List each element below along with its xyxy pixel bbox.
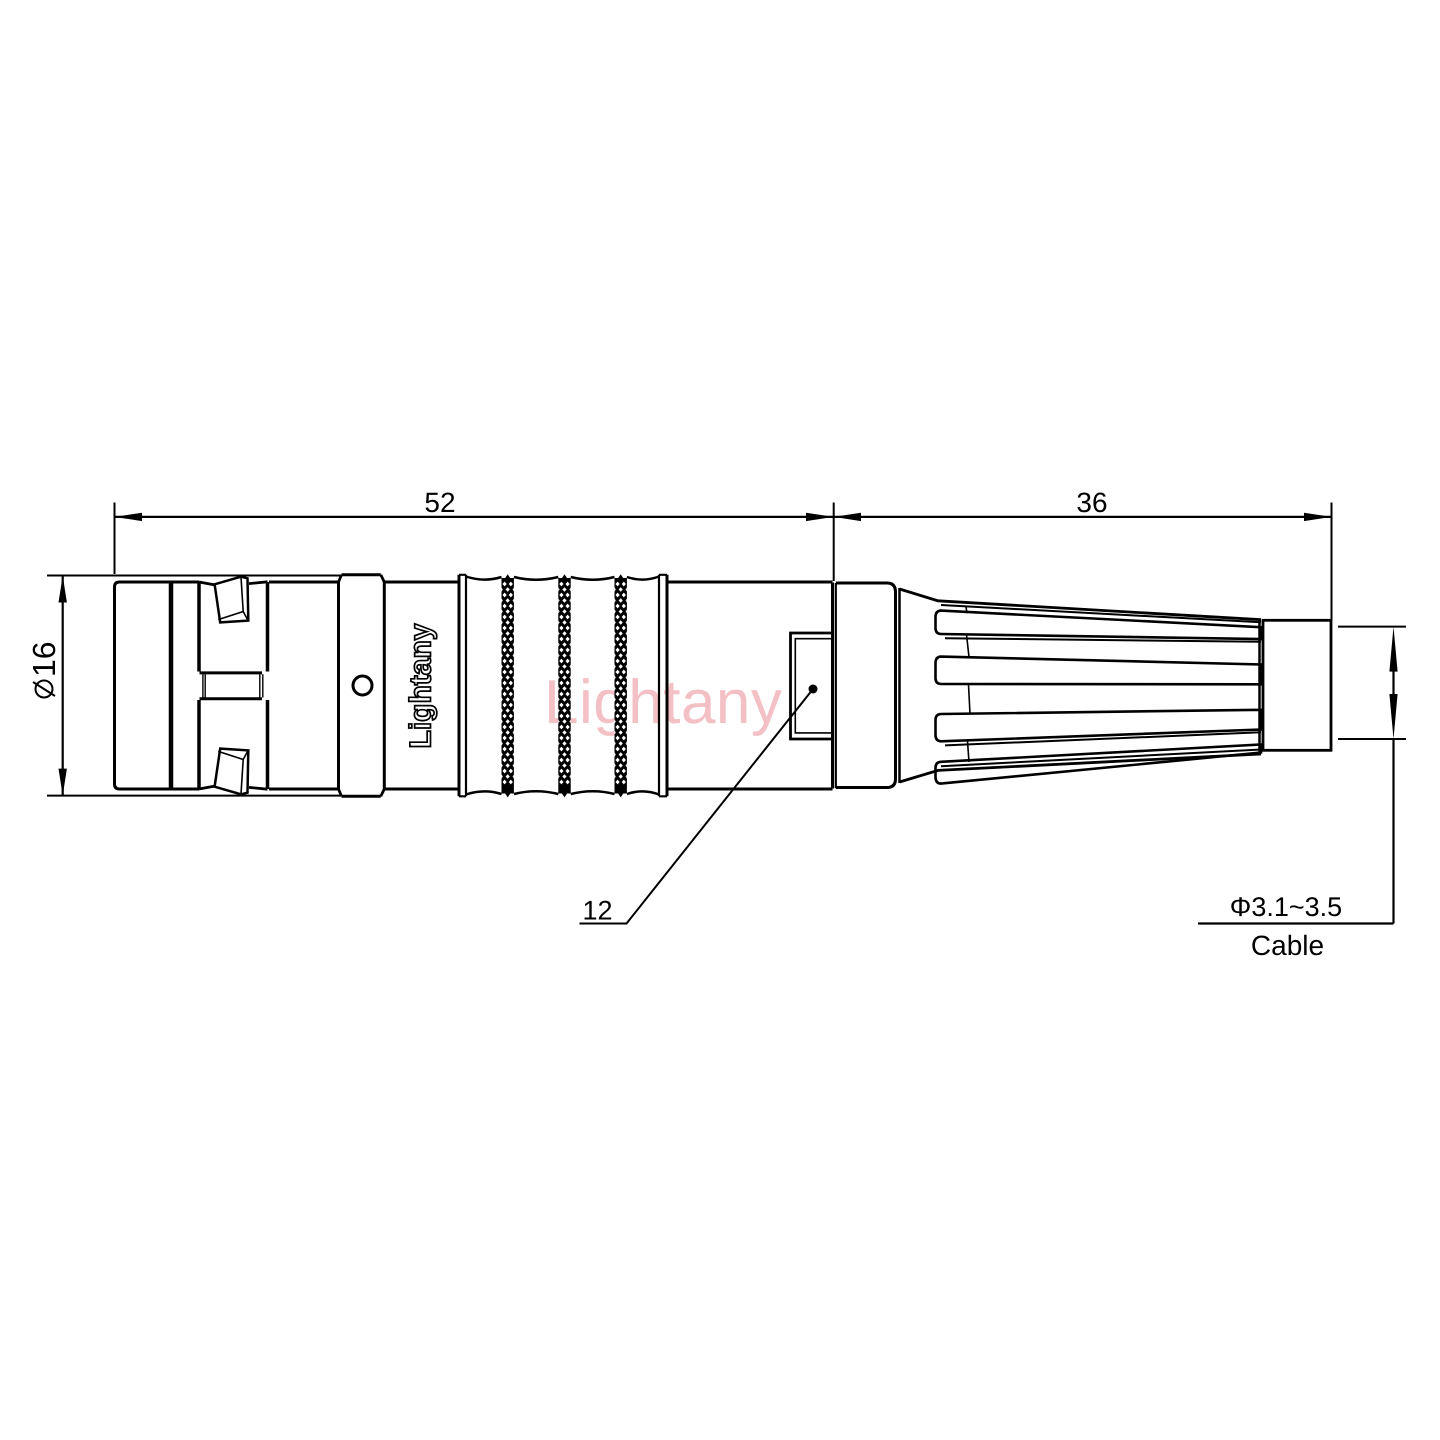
svg-text:Lightany: Lightany xyxy=(544,668,782,737)
svg-text:36: 36 xyxy=(1076,487,1107,518)
svg-text:Lightany: Lightany xyxy=(405,623,438,748)
svg-text:Φ3.1~3.5: Φ3.1~3.5 xyxy=(1230,892,1342,922)
svg-text:12: 12 xyxy=(582,896,612,926)
svg-text:52: 52 xyxy=(424,487,455,518)
svg-text:16: 16 xyxy=(26,641,62,677)
svg-text:Cable: Cable xyxy=(1251,930,1324,961)
